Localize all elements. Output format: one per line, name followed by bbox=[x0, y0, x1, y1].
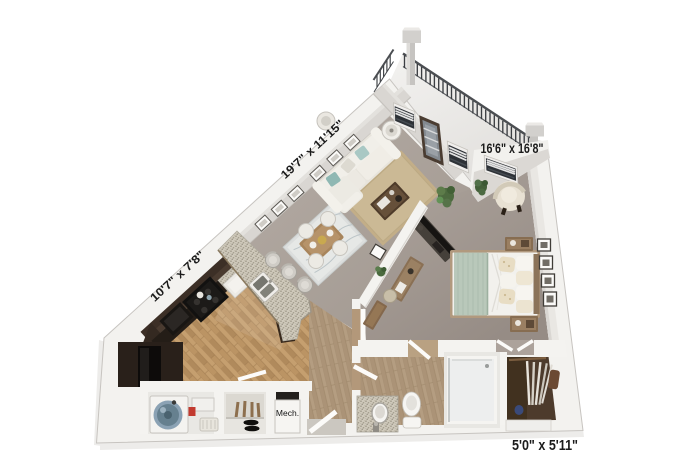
svg-text:Mech.: Mech. bbox=[276, 408, 299, 418]
svg-text:16'6" x 16'8": 16'6" x 16'8" bbox=[481, 141, 544, 156]
svg-text:5'0" x 5'11": 5'0" x 5'11" bbox=[512, 438, 578, 454]
